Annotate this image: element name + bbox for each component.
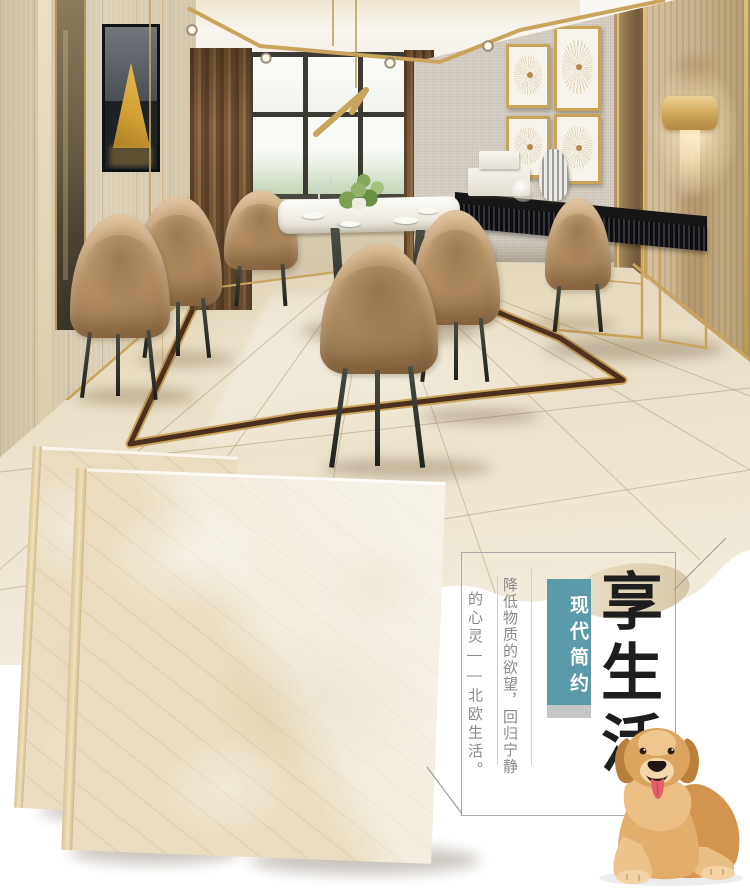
tile-gloss-reflection: [72, 468, 445, 863]
tagline-primary: 降低物质的欲望，回归宁静: [502, 577, 517, 775]
tile-marketing-poster: 的心灵——北欧生活。 降低物质的欲望，回归宁静 现代简约 享生活: [0, 0, 750, 896]
divider-line: [497, 575, 498, 765]
tagline-secondary: 的心灵——北欧生活。: [467, 591, 482, 780]
style-badge: 现代简约: [547, 579, 591, 705]
golden-retriever-photo: [585, 706, 750, 888]
tile-sample-front: [61, 468, 445, 864]
divider-line: [531, 569, 532, 765]
